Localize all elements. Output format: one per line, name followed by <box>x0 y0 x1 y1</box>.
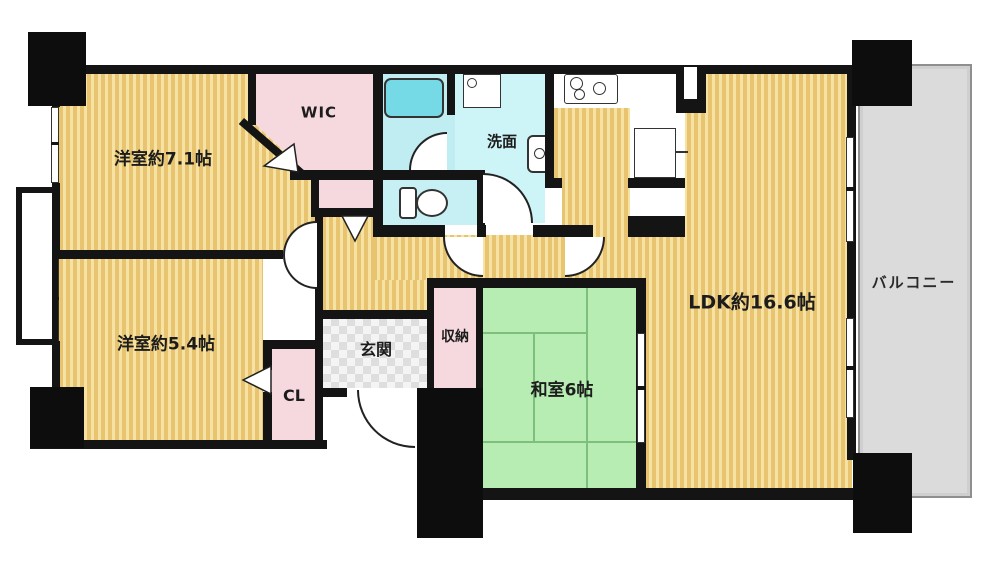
wall-kitchen-counter <box>628 178 685 188</box>
wall-closet-entrance-divider <box>315 318 323 449</box>
wall-closet-left <box>263 392 272 449</box>
wall-wic-lower-left <box>311 178 319 210</box>
sliding-door-tick <box>636 386 646 390</box>
bay-window-outline <box>16 187 58 345</box>
wall-bath-left <box>373 65 383 237</box>
wall-wic-bottom <box>290 170 375 180</box>
door-swing-entrance <box>357 390 415 448</box>
window-mullion <box>846 187 854 191</box>
stove-burner-icon <box>574 89 585 100</box>
wall-closet-left <box>263 340 272 370</box>
wall-toilet-top <box>373 170 485 180</box>
wall-washroom-right <box>545 65 554 178</box>
wall-bath-washroom-divider <box>447 65 455 115</box>
wall-wic-left <box>248 65 256 125</box>
stove-burner-icon <box>593 82 606 95</box>
window-mullion <box>51 142 59 145</box>
wall-washroom-bottom <box>533 225 593 237</box>
refrigerator-icon <box>634 128 676 178</box>
refrigerator-handle-icon <box>676 151 688 153</box>
stove-burner-icon <box>570 77 583 90</box>
washbasin-bowl-icon <box>534 148 545 159</box>
wall-bottom <box>476 488 856 500</box>
wall-wic-lower-bottom <box>311 208 381 217</box>
wall-closet-top <box>263 340 323 349</box>
toilet-tank-icon <box>399 187 417 219</box>
bedroom2-label: 洋室約5.4帖 <box>117 337 215 354</box>
closet-label: CL <box>283 388 305 404</box>
window-mullion <box>846 366 854 370</box>
wall-basin-stub <box>545 178 562 188</box>
pillar-bottom-right <box>853 453 912 533</box>
washing-machine-dial-icon <box>467 78 477 88</box>
japanese-room-label: 和室6帖 <box>531 383 594 400</box>
bedroom1-label: 洋室約7.1帖 <box>114 152 212 169</box>
floorplan: 洋室約7.1帖 WIC 洗面 LDK約16.6帖 バルコニー 洋室約5.4帖 C… <box>0 0 1000 571</box>
kitchen-niche <box>546 188 562 225</box>
tatami-line <box>482 441 638 443</box>
pillar-top-left <box>28 32 86 106</box>
window-bedroom1 <box>51 107 59 183</box>
wall-toilet-bottom <box>373 225 445 237</box>
entrance-label: 玄関 <box>360 342 392 358</box>
wall-bedroom-divider <box>52 250 283 259</box>
storage-label: 収納 <box>441 330 469 344</box>
pillar-top-right <box>852 40 912 106</box>
wall-storage-left <box>427 287 434 388</box>
ldk-label: LDK約16.6帖 <box>688 294 815 313</box>
wic-floor-lower <box>318 178 373 210</box>
wall-japanese-room-top <box>427 278 645 288</box>
bathtub-icon <box>384 78 444 118</box>
pillar-bottom-left <box>30 387 84 448</box>
balcony-label: バルコニー <box>872 276 957 291</box>
wic-label: WIC <box>301 106 337 121</box>
washroom-label: 洗面 <box>487 135 517 150</box>
pillar-entrance <box>417 388 483 538</box>
toilet-bowl-icon <box>416 189 448 217</box>
wall-entrance-bottom-stub <box>315 388 347 397</box>
wall-kitchen-counter <box>628 216 685 237</box>
duct-shaft-inner <box>684 67 697 99</box>
bathroom-door-gap <box>447 115 455 170</box>
wall-entrance-top <box>315 310 434 319</box>
wall-door-post <box>479 225 486 237</box>
